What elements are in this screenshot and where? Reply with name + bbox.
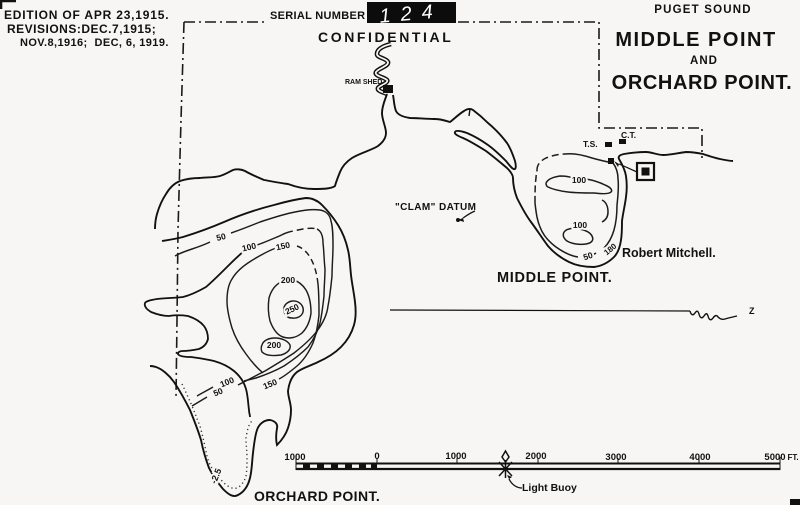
svg-text:T.S.: T.S. bbox=[583, 139, 598, 149]
svg-text:1000: 1000 bbox=[284, 452, 305, 463]
svg-text:ORCHARD POINT.: ORCHARD POINT. bbox=[612, 72, 793, 94]
svg-text:NOV.8,1916; DEC, 6, 1919.: NOV.8,1916; DEC, 6, 1919. bbox=[20, 37, 169, 49]
svg-text:2000: 2000 bbox=[525, 451, 546, 462]
svg-text:100: 100 bbox=[573, 220, 587, 230]
svg-text:100: 100 bbox=[572, 175, 586, 185]
svg-text:0: 0 bbox=[374, 451, 379, 462]
svg-text:"CLAM" DATUM: "CLAM" DATUM bbox=[395, 202, 476, 213]
svg-text:Light Buoy: Light Buoy bbox=[522, 482, 577, 494]
svg-text:1000: 1000 bbox=[445, 451, 466, 462]
svg-text:FT.: FT. bbox=[787, 453, 798, 462]
svg-text:CONFIDENTIAL: CONFIDENTIAL bbox=[318, 29, 453, 45]
svg-text:SERIAL NUMBER: SERIAL NUMBER bbox=[270, 10, 365, 22]
svg-text:200: 200 bbox=[281, 275, 295, 285]
svg-text:C.T.: C.T. bbox=[621, 130, 636, 140]
svg-text:RAM SHED: RAM SHED bbox=[345, 79, 382, 86]
svg-text:PUGET SOUND: PUGET SOUND bbox=[654, 4, 752, 16]
svg-text:5000: 5000 bbox=[764, 452, 785, 463]
svg-text:REVISIONS:DEC.7,1915;: REVISIONS:DEC.7,1915; bbox=[7, 22, 156, 36]
svg-text:EDITION OF APR 23,1915.: EDITION OF APR 23,1915. bbox=[4, 8, 169, 22]
svg-text:AND: AND bbox=[690, 55, 718, 67]
svg-text:200: 200 bbox=[267, 340, 281, 350]
svg-text:Robert Mitchell.: Robert Mitchell. bbox=[622, 246, 716, 260]
svg-text:ORCHARD POINT.: ORCHARD POINT. bbox=[254, 488, 380, 504]
svg-text:4000: 4000 bbox=[689, 452, 710, 463]
svg-text:MIDDLE POINT.: MIDDLE POINT. bbox=[497, 270, 612, 286]
svg-text:3000: 3000 bbox=[605, 452, 626, 463]
svg-text:Z: Z bbox=[749, 306, 755, 316]
svg-text:MIDDLE POINT: MIDDLE POINT bbox=[615, 29, 776, 51]
